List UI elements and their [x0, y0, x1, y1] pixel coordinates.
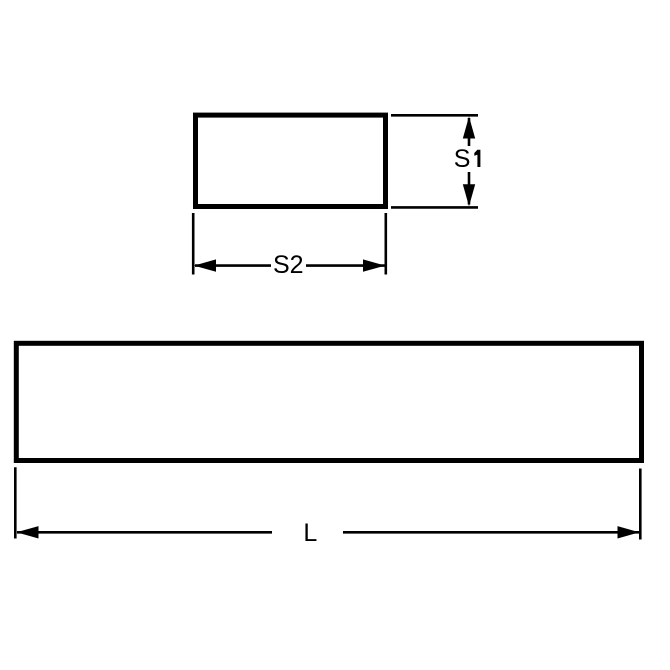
svg-text:S: S	[454, 145, 471, 173]
svg-text:L: L	[303, 519, 317, 547]
svg-text:S2: S2	[273, 251, 304, 279]
